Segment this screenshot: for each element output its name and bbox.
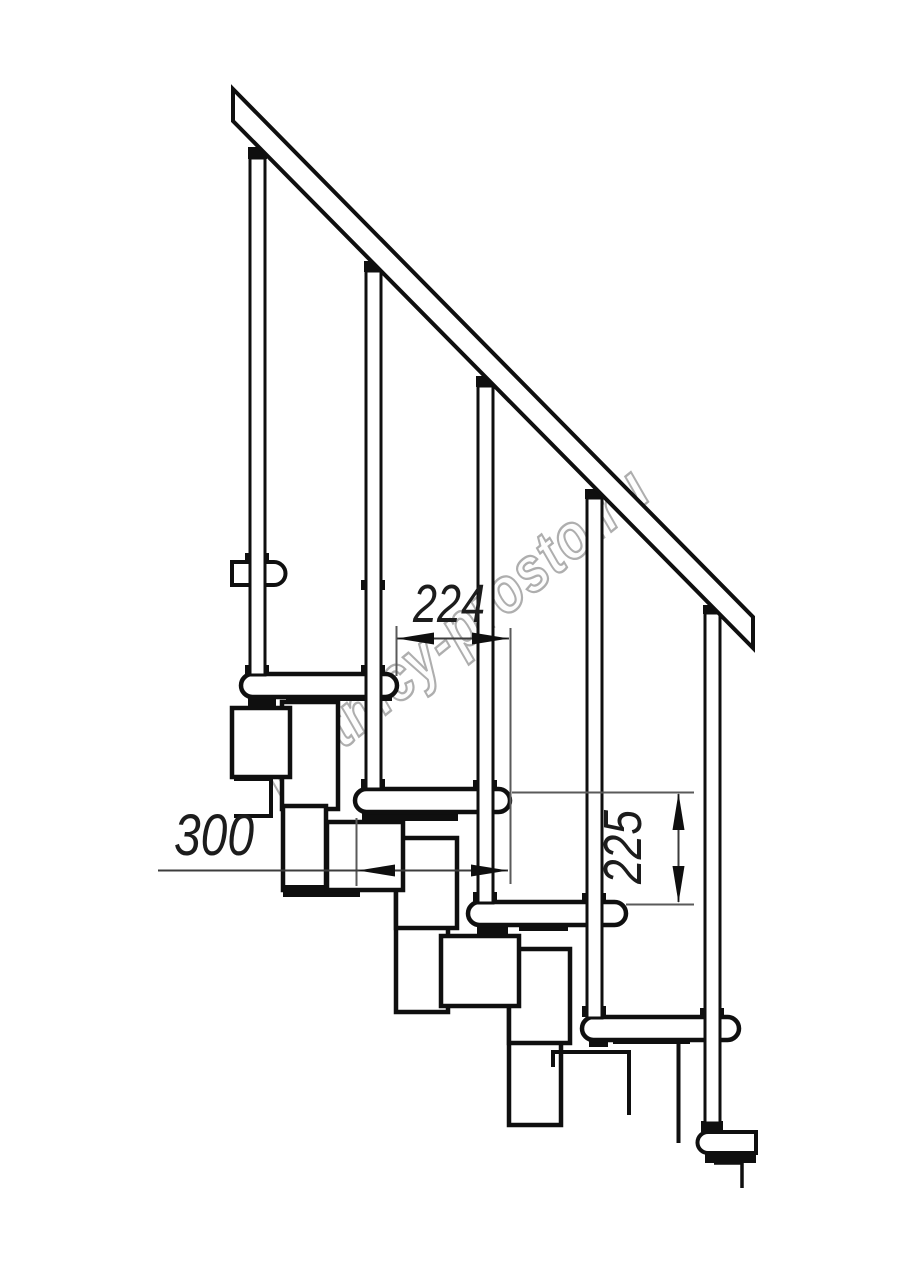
lower-step-outline [714,1163,742,1188]
baluster-3 [478,386,493,903]
arrow-up [673,793,685,830]
baluster-4 [587,498,602,1018]
module-box [232,708,290,777]
dimension-value-rise: 225 [593,809,653,885]
module-box-partial [553,1052,629,1115]
stair-technical-drawing: lestnicy-prosto.ru [0,0,914,1280]
arrow-down [673,866,685,903]
dimension-value-tread-depth: 300 [174,803,254,868]
module-box [283,806,326,890]
dimension-value-going: 224 [412,574,485,634]
tread-6 [698,1132,757,1153]
baluster-1 [250,158,265,675]
module-box [441,936,519,1006]
baluster-5 [705,613,720,1123]
module-box [327,822,403,890]
baluster-2 [366,271,381,789]
